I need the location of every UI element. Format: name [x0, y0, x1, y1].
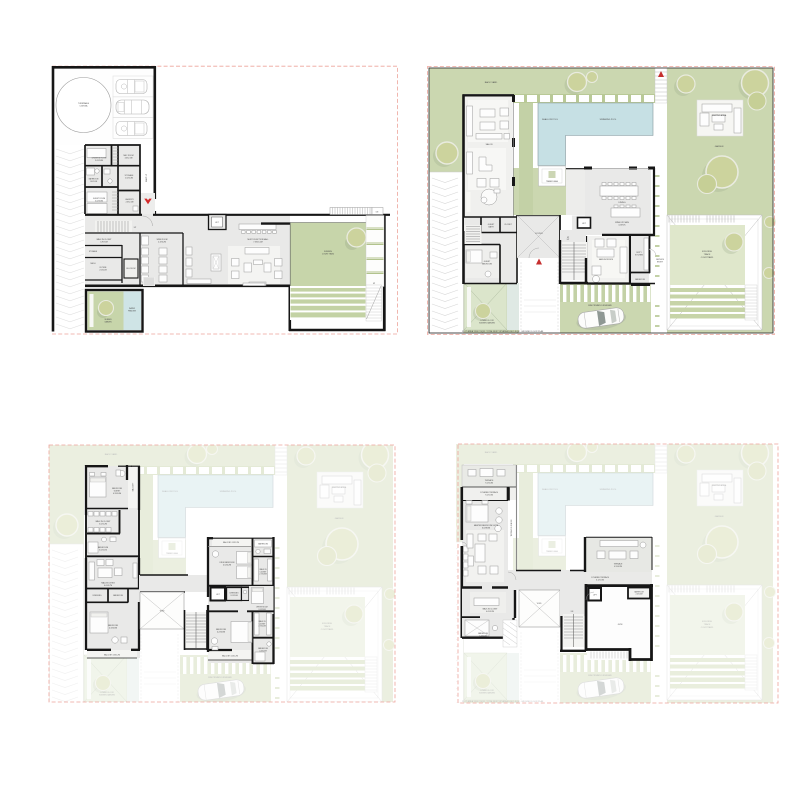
svg-text:7.0X1.5M: 7.0X1.5M [485, 494, 493, 496]
svg-text:3.0X3.6M: 3.0X3.6M [95, 201, 103, 203]
svg-text:3.0X2.6M: 3.0X2.6M [95, 160, 103, 162]
svg-text:COURT YARD: COURT YARD [322, 253, 335, 256]
svg-text:3.6X2.5M: 3.6X2.5M [125, 158, 133, 160]
svg-text:6.0X8.6M: 6.0X8.6M [482, 528, 491, 530]
svg-text:ELE ROOM: ELE ROOM [127, 268, 137, 270]
svg-text:BALCONY 4.3X1.2M: BALCONY 4.3X1.2M [104, 654, 120, 657]
svg-text:MECH: MECH [91, 263, 97, 265]
svg-text:3.0X2.1M: 3.0X2.1M [99, 549, 107, 551]
svg-text:6.0X3.7M: 6.0X3.7M [104, 585, 113, 587]
svg-text:4.3X1.9M: 4.3X1.9M [259, 650, 267, 652]
svg-text:2.6X2.4M: 2.6X2.4M [126, 202, 134, 204]
svg-text:SALON: SALON [486, 143, 493, 146]
svg-text:VOID: VOID [537, 603, 542, 605]
svg-text:BATH: BATH [489, 226, 495, 229]
svg-text:4.3X6.2M: 4.3X6.2M [158, 242, 166, 244]
svg-text:3.0X2.2M: 3.0X2.2M [99, 523, 107, 525]
svg-text:BATHROOM: BATHROOM [258, 543, 268, 546]
svg-text:& DECK: & DECK [618, 225, 626, 227]
svg-text:ENTRY: ENTRY [657, 262, 664, 264]
svg-text:TERRACE 1.2X10.2M: TERRACE 1.2X10.2M [510, 519, 513, 536]
svg-text:FOYER: FOYER [535, 233, 543, 235]
svg-text:7.0X2.0M: 7.0X2.0M [485, 482, 493, 484]
svg-text:2.4X1.6M: 2.4X1.6M [636, 594, 643, 596]
svg-text:2.6X2.4M: 2.6X2.4M [125, 178, 133, 180]
svg-text:BALCONY: BALCONY [132, 482, 135, 491]
svg-text:4.2X4.6M: 4.2X4.6M [217, 632, 226, 634]
svg-text:BATHROOM: BATHROOM [635, 278, 645, 281]
svg-text:6.1X1.5M: 6.1X1.5M [596, 579, 604, 581]
svg-text:BALCONY 4.9X1.2M: BALCONY 4.9X1.2M [223, 541, 239, 544]
svg-text:DRESSING: DRESSING [93, 595, 103, 597]
svg-text:GYM: GYM [618, 624, 623, 626]
svg-text:2.6X2.0M: 2.6X2.0M [99, 270, 107, 272]
svg-text:GARDEN: GARDEN [104, 320, 112, 323]
svg-text:MAJLIS/OFFICE: MAJLIS/OFFICE [599, 258, 614, 261]
svg-text:4.5X4.2M: 4.5X4.2M [614, 566, 622, 568]
svg-text:4.3X4.6M: 4.3X4.6M [109, 628, 118, 630]
svg-text:CLOSET: CLOSET [504, 224, 512, 226]
svg-text:2.7X2.0M: 2.7X2.0M [258, 626, 266, 628]
svg-text:6.0X3.2M: 6.0X3.2M [486, 611, 494, 613]
svg-text:BATHROOM: BATHROOM [113, 594, 123, 597]
svg-text:7.3X16.2M: 7.3X16.2M [253, 242, 263, 244]
svg-text:& ROOM: & ROOM [100, 242, 108, 244]
svg-text:5.5M DIA: 5.5M DIA [80, 105, 89, 108]
svg-text:BEDROOM: BEDROOM [482, 264, 492, 266]
svg-text:4.5X4.2M: 4.5X4.2M [223, 565, 232, 567]
svg-text:RAMP UP: RAMP UP [145, 173, 148, 182]
svg-text:KITCHEN: KITCHEN [635, 255, 644, 257]
svg-text:1.8X2.0M: 1.8X2.0M [90, 181, 98, 183]
svg-text:2.7X1.8M: 2.7X1.8M [259, 574, 267, 576]
svg-text:BALCONY 4.2X1.2M: BALCONY 4.2X1.2M [222, 655, 238, 658]
svg-text:STORAGE: STORAGE [89, 250, 98, 253]
svg-text:4.3X5.0M: 4.3X5.0M [113, 493, 122, 495]
svg-text:2.0X2.0M: 2.0X2.0M [230, 595, 238, 597]
svg-text:DINING: DINING [619, 202, 626, 204]
svg-text:FEATURE: FEATURE [128, 309, 137, 312]
svg-text:VOID: VOID [160, 611, 165, 613]
